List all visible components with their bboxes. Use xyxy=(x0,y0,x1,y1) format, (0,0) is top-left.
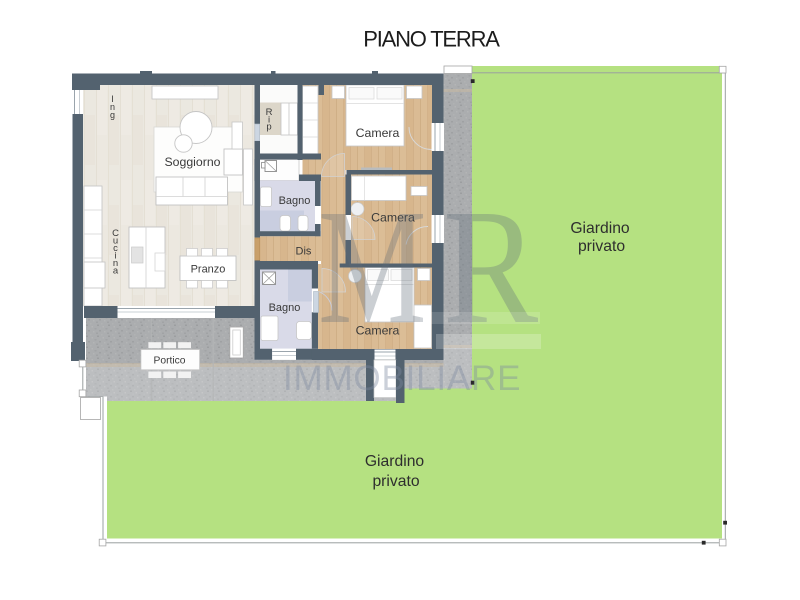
svg-text:Soggiorno: Soggiorno xyxy=(164,155,220,169)
svg-text:privato: privato xyxy=(372,473,419,490)
svg-text:R: R xyxy=(443,177,538,359)
svg-text:PIANO TERRA: PIANO TERRA xyxy=(363,27,500,52)
svg-text:Camera: Camera xyxy=(356,126,400,140)
svg-text:Bagno: Bagno xyxy=(279,195,311,207)
svg-text:Giardino: Giardino xyxy=(365,453,425,470)
svg-text:Giardino: Giardino xyxy=(570,220,630,237)
svg-text:M: M xyxy=(318,176,427,358)
svg-text:privato: privato xyxy=(578,238,625,255)
svg-text:IMMOBILIARE: IMMOBILIARE xyxy=(283,359,521,398)
svg-text:p: p xyxy=(266,122,271,133)
svg-text:Dis: Dis xyxy=(296,246,312,258)
svg-text:Pranzo: Pranzo xyxy=(191,264,226,276)
svg-text:a: a xyxy=(113,266,119,277)
svg-text:Bagno: Bagno xyxy=(269,302,301,314)
svg-text:Portico: Portico xyxy=(153,356,185,367)
svg-text:g: g xyxy=(110,110,115,120)
